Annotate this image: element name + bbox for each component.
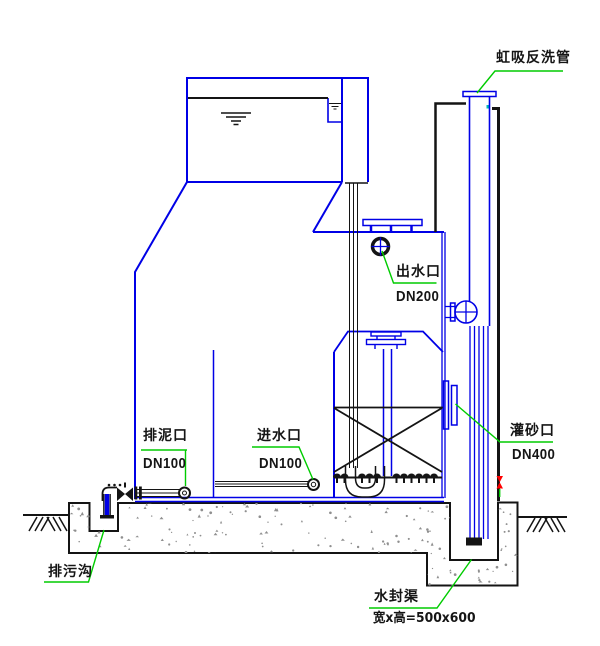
label-siphon-backwash-pipe: 虹吸反洗管 <box>496 51 571 65</box>
label-water-seal-dimension: 宽x高=500x600 <box>373 612 476 625</box>
siphon-pipe <box>463 92 496 546</box>
ground-symbol-left <box>23 515 69 531</box>
sludge-pipe-assembly <box>100 483 190 519</box>
label-outlet-port: 出水口 <box>396 265 441 279</box>
main-tank-shell <box>135 182 444 502</box>
label-sludge-port: 排泥口 <box>143 429 188 443</box>
pipe-foot <box>466 538 482 546</box>
filter-tank <box>313 183 445 498</box>
x-bracing <box>334 408 443 473</box>
leader-lines <box>44 71 563 608</box>
label-inlet-port: 进水口 <box>257 429 302 443</box>
label-sand-fill-size: DN400 <box>512 447 555 462</box>
backwash-valve <box>445 301 478 323</box>
diagram-linework <box>0 0 600 646</box>
top-water-tank <box>187 78 368 183</box>
u-bend-pipe <box>346 466 385 497</box>
label-drain-ditch: 排污沟 <box>48 565 93 579</box>
label-water-seal-channel: 水封渠 <box>374 590 419 604</box>
sludge-elbow-downpipe <box>100 488 117 519</box>
filter-nozzles <box>333 474 442 484</box>
label-outlet-size: DN200 <box>396 289 439 304</box>
label-sludge-size: DN100 <box>143 456 186 471</box>
foundation <box>69 500 518 586</box>
water-level-symbol <box>221 104 341 125</box>
ground-symbol-right <box>518 517 568 532</box>
outlet-port-symbol <box>372 238 390 256</box>
inlet-pipe <box>215 479 319 490</box>
sludge-valve <box>108 483 133 502</box>
label-inlet-size: DN100 <box>259 456 302 471</box>
label-sand-fill-port: 灌砂口 <box>510 424 555 438</box>
engineering-drawing: 虹吸反洗管 出水口 DN200 排泥口 DN100 进水口 DN100 灌砂口 … <box>0 0 600 646</box>
